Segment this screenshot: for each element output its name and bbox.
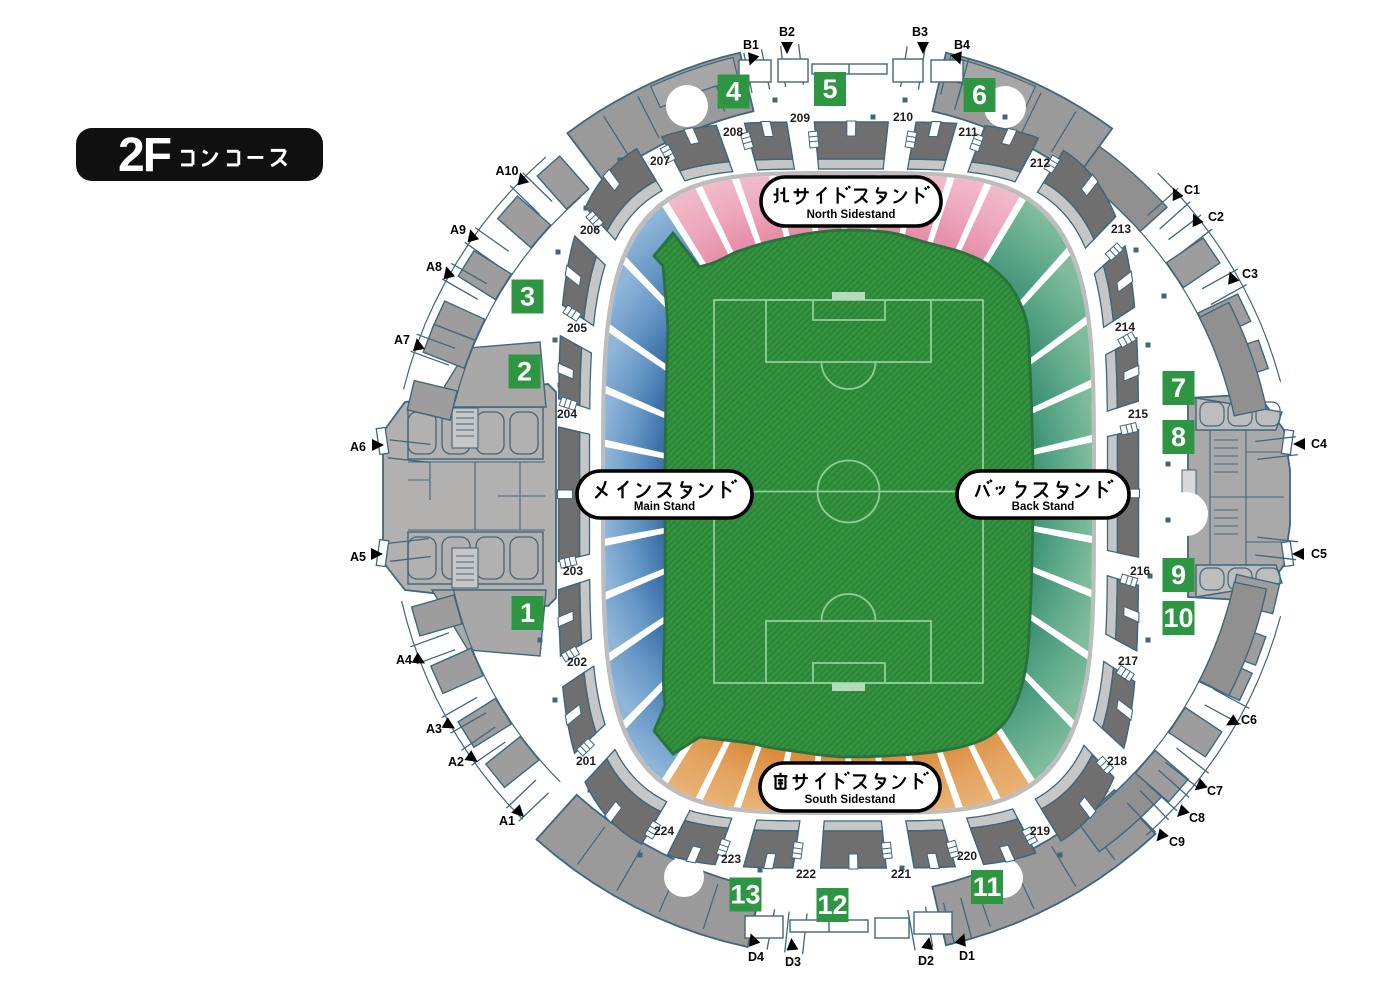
svg-text:A3: A3: [426, 722, 442, 736]
svg-text:D3: D3: [785, 955, 801, 969]
svg-text:219: 219: [1030, 824, 1050, 838]
svg-text:217: 217: [1118, 654, 1138, 668]
svg-text:214: 214: [1115, 320, 1135, 334]
svg-text:C5: C5: [1311, 547, 1327, 561]
svg-text:204: 204: [557, 407, 577, 421]
svg-text:203: 203: [563, 564, 583, 578]
svg-text:Back Stand: Back Stand: [1012, 501, 1075, 513]
svg-text:8: 8: [1171, 422, 1186, 452]
svg-text:C9: C9: [1169, 835, 1185, 849]
svg-text:209: 209: [790, 111, 810, 125]
svg-text:213: 213: [1111, 222, 1131, 236]
svg-text:221: 221: [891, 867, 911, 881]
svg-text:B3: B3: [912, 25, 928, 39]
svg-text:3: 3: [520, 282, 535, 312]
svg-text:220: 220: [957, 849, 977, 863]
svg-text:B2: B2: [779, 25, 795, 39]
svg-text:201: 201: [576, 754, 596, 768]
svg-text:A9: A9: [450, 223, 466, 237]
svg-text:D4: D4: [748, 950, 764, 964]
svg-text:202: 202: [567, 655, 587, 669]
svg-text:218: 218: [1107, 754, 1127, 768]
svg-text:A5: A5: [350, 550, 366, 564]
svg-text:215: 215: [1128, 407, 1148, 421]
svg-text:13: 13: [730, 880, 760, 910]
svg-text:C1: C1: [1184, 183, 1200, 197]
svg-text:B4: B4: [954, 38, 970, 52]
svg-text:B1: B1: [743, 38, 759, 52]
svg-text:C3: C3: [1242, 267, 1258, 281]
svg-text:6: 6: [972, 80, 987, 110]
svg-text:210: 210: [893, 110, 913, 124]
svg-text:A4: A4: [396, 653, 412, 667]
svg-text:216: 216: [1130, 564, 1150, 578]
svg-text:2: 2: [517, 357, 532, 387]
svg-text:10: 10: [1163, 603, 1193, 633]
svg-text:C6: C6: [1241, 713, 1257, 727]
svg-text:223: 223: [721, 852, 741, 866]
svg-text:7: 7: [1171, 373, 1186, 403]
svg-text:2F: 2F: [118, 129, 171, 182]
svg-text:C8: C8: [1189, 811, 1205, 825]
svg-text:A2: A2: [448, 755, 464, 769]
svg-text:1: 1: [520, 598, 535, 628]
svg-text:205: 205: [567, 321, 587, 335]
svg-text:D1: D1: [959, 949, 975, 963]
svg-text:4: 4: [726, 77, 741, 107]
svg-text:C7: C7: [1207, 784, 1223, 798]
svg-text:12: 12: [817, 890, 847, 920]
svg-text:South Sidestand: South Sidestand: [805, 794, 896, 806]
svg-text:211: 211: [958, 125, 978, 139]
svg-text:A7: A7: [394, 333, 410, 347]
svg-text:222: 222: [796, 867, 816, 881]
svg-text:A8: A8: [426, 260, 442, 274]
svg-text:9: 9: [1171, 560, 1186, 590]
svg-text:C2: C2: [1208, 210, 1224, 224]
svg-text:C4: C4: [1311, 437, 1327, 451]
svg-text:206: 206: [580, 223, 600, 237]
svg-text:5: 5: [822, 74, 837, 104]
svg-text:A10: A10: [496, 164, 519, 178]
svg-text:212: 212: [1030, 156, 1050, 170]
svg-text:North Sidestand: North Sidestand: [807, 209, 896, 221]
svg-text:11: 11: [973, 872, 1002, 902]
svg-text:A6: A6: [350, 440, 366, 454]
svg-text:A1: A1: [499, 814, 515, 828]
svg-text:224: 224: [654, 824, 674, 838]
svg-text:207: 207: [650, 154, 670, 168]
svg-text:208: 208: [723, 125, 743, 139]
svg-text:D2: D2: [918, 954, 934, 968]
svg-text:Main Stand: Main Stand: [634, 501, 695, 513]
